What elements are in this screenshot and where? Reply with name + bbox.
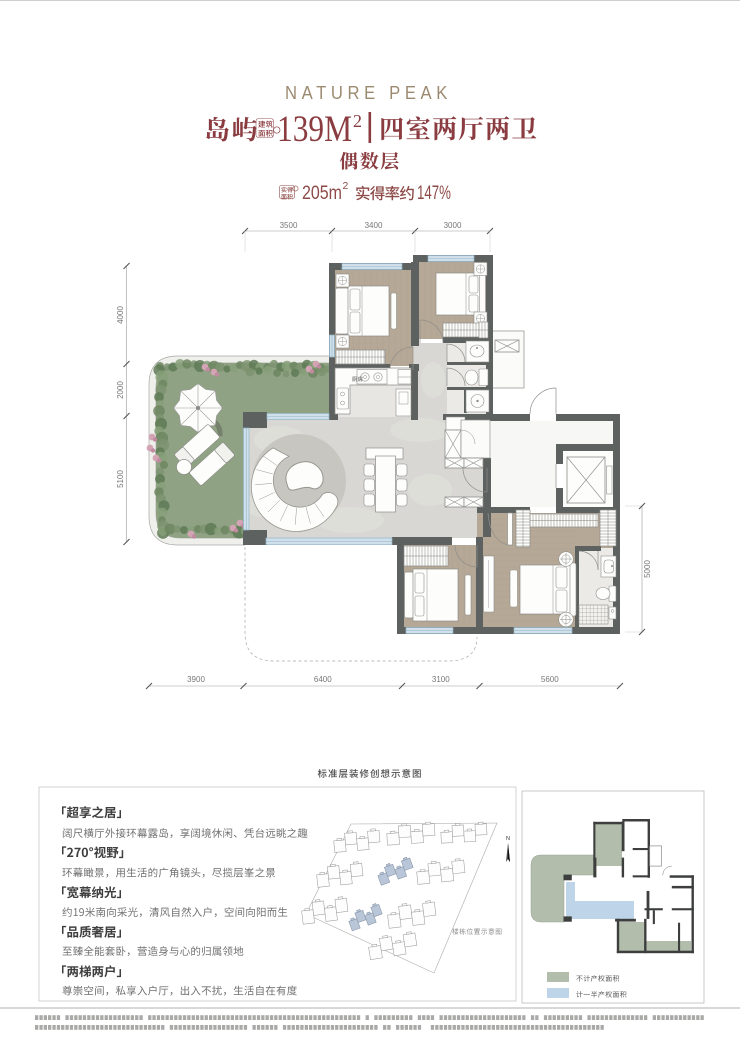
svg-text:2: 2 [353, 111, 362, 131]
svg-text:5600: 5600 [541, 675, 559, 684]
svg-text:205m: 205m [302, 182, 342, 204]
svg-text:6400: 6400 [314, 675, 332, 684]
svg-text:3000: 3000 [444, 221, 462, 230]
svg-text:4000: 4000 [116, 306, 125, 324]
svg-text:N: N [506, 836, 510, 842]
svg-text:2000: 2000 [116, 381, 125, 399]
svg-text:3400: 3400 [365, 221, 383, 230]
svg-text:3100: 3100 [432, 675, 450, 684]
svg-text:147%: 147% [417, 183, 451, 204]
svg-text:5100: 5100 [116, 470, 125, 488]
svg-text:NATURE PEAK: NATURE PEAK [285, 83, 452, 103]
svg-text:2: 2 [343, 180, 349, 192]
svg-text:3900: 3900 [187, 675, 205, 684]
svg-text:139M: 139M [277, 109, 352, 150]
svg-text:5000: 5000 [643, 560, 652, 578]
svg-text:3500: 3500 [280, 221, 298, 230]
